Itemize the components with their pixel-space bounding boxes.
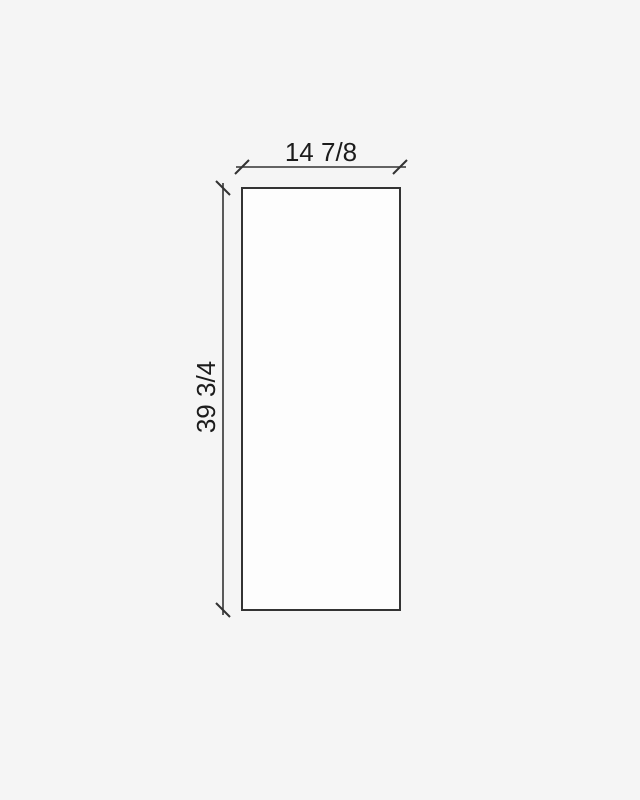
height-dimension-label: 39 3/4 — [191, 361, 221, 433]
dimension-drawing: 14 7/8 39 3/4 — [0, 0, 640, 800]
width-dimension-label: 14 7/8 — [285, 137, 357, 167]
dimension-drawing-canvas: 14 7/8 39 3/4 — [0, 0, 640, 800]
panel-outline — [242, 188, 400, 610]
